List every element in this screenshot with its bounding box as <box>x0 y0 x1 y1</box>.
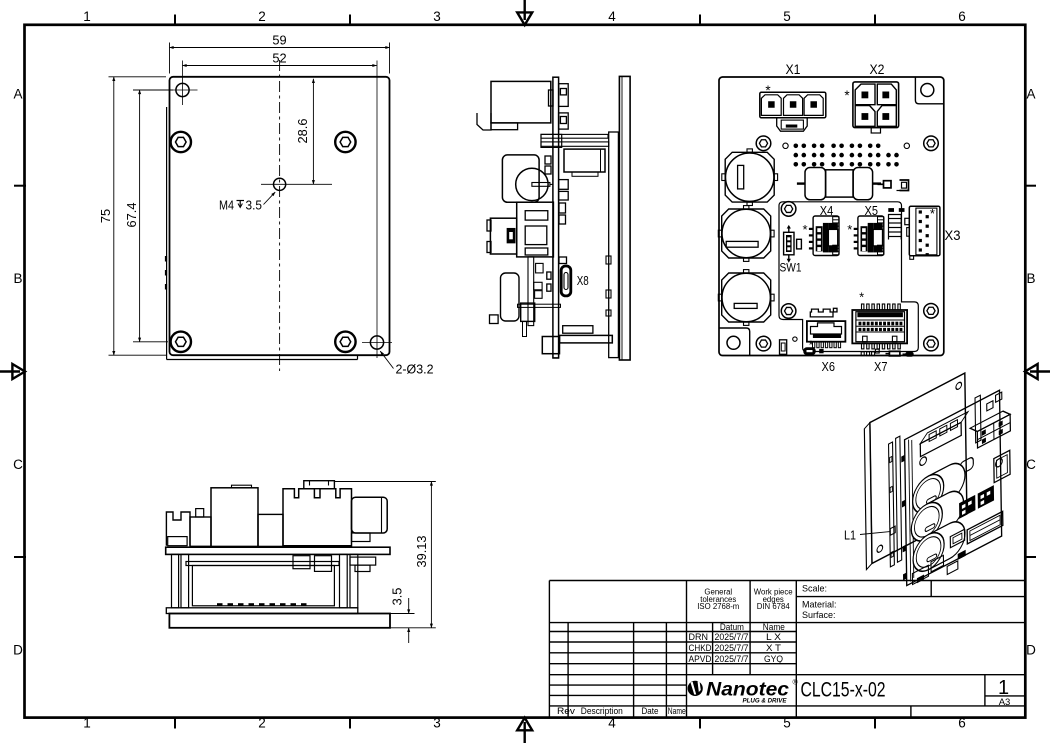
svg-text:X5: X5 <box>865 204 879 218</box>
svg-text:3: 3 <box>433 9 441 24</box>
svg-text:3: 3 <box>433 716 441 731</box>
svg-text:C: C <box>1026 457 1036 472</box>
svg-text:Scale:: Scale: <box>802 584 827 594</box>
svg-text:Datum: Datum <box>720 622 744 632</box>
svg-text:ISO 2768-m: ISO 2768-m <box>697 602 739 611</box>
svg-text:52: 52 <box>272 51 286 66</box>
svg-text:SW1: SW1 <box>780 261 802 275</box>
svg-text:*: * <box>802 222 807 237</box>
svg-text:DIN 6784: DIN 6784 <box>757 602 791 611</box>
svg-text:Name: Name <box>668 706 686 716</box>
svg-text:B: B <box>1026 271 1035 286</box>
svg-text:D: D <box>13 643 23 658</box>
svg-text:*: * <box>859 290 864 305</box>
svg-text:*: * <box>844 88 850 103</box>
svg-text:5: 5 <box>783 9 791 24</box>
svg-text:Surface:: Surface: <box>802 610 836 620</box>
svg-text:B: B <box>13 271 22 286</box>
svg-text:*: * <box>930 206 935 221</box>
svg-text:Name: Name <box>763 622 785 632</box>
svg-text:M4: M4 <box>219 198 234 213</box>
svg-text:2-Ø3.2: 2-Ø3.2 <box>396 362 434 377</box>
svg-text:X8: X8 <box>577 274 589 288</box>
svg-text:Date: Date <box>642 706 659 716</box>
svg-text:C: C <box>13 457 23 472</box>
svg-text:X2: X2 <box>870 61 885 77</box>
svg-text:3.5: 3.5 <box>246 198 263 213</box>
svg-text:5: 5 <box>783 716 791 731</box>
svg-text:4: 4 <box>608 716 616 731</box>
svg-text:59: 59 <box>272 33 286 48</box>
svg-text:39.13: 39.13 <box>414 535 429 567</box>
svg-text:A: A <box>13 87 22 102</box>
svg-text:67.4: 67.4 <box>124 203 139 228</box>
svg-text:*: * <box>765 83 771 98</box>
svg-text:DRN: DRN <box>689 632 709 642</box>
svg-text:1: 1 <box>998 677 1009 699</box>
svg-text:28.6: 28.6 <box>295 119 310 144</box>
svg-text:3.5: 3.5 <box>390 588 405 606</box>
svg-text:A3: A3 <box>999 697 1011 708</box>
svg-text:*: * <box>847 222 852 237</box>
svg-text:X6: X6 <box>822 359 836 374</box>
svg-text:4: 4 <box>608 9 616 24</box>
svg-text:L1: L1 <box>844 529 856 543</box>
svg-text:X1: X1 <box>786 61 801 77</box>
svg-text:X3: X3 <box>945 227 961 243</box>
svg-text:Rev: Rev <box>557 706 575 716</box>
svg-text:PLUG & DRIVE: PLUG & DRIVE <box>743 698 788 705</box>
svg-text:CHKD: CHKD <box>689 643 712 653</box>
svg-text:2025/7/7: 2025/7/7 <box>715 654 749 664</box>
svg-text:X T: X T <box>766 643 781 653</box>
svg-text:D: D <box>1026 643 1036 658</box>
svg-text:X4: X4 <box>820 204 834 218</box>
svg-text:6: 6 <box>958 9 966 24</box>
svg-text:A: A <box>1026 87 1035 102</box>
svg-text:X7: X7 <box>874 359 888 374</box>
svg-text:L X: L X <box>766 632 781 642</box>
svg-text:75: 75 <box>98 209 113 223</box>
svg-text:2: 2 <box>258 716 266 731</box>
svg-text:*: * <box>809 338 814 352</box>
svg-text:CLC15-x-02: CLC15-x-02 <box>801 678 886 702</box>
svg-text:2025/7/7: 2025/7/7 <box>715 632 749 642</box>
svg-text:APVD: APVD <box>689 654 712 664</box>
svg-text:2: 2 <box>258 9 266 24</box>
svg-text:6: 6 <box>958 716 966 731</box>
svg-text:1: 1 <box>83 716 91 731</box>
svg-text:®: ® <box>793 679 799 687</box>
svg-text:GYQ: GYQ <box>764 654 783 664</box>
svg-text:Material:: Material: <box>802 600 837 610</box>
svg-text:2025/7/7: 2025/7/7 <box>715 643 749 653</box>
svg-text:Description: Description <box>581 706 623 716</box>
svg-text:1: 1 <box>83 9 91 24</box>
